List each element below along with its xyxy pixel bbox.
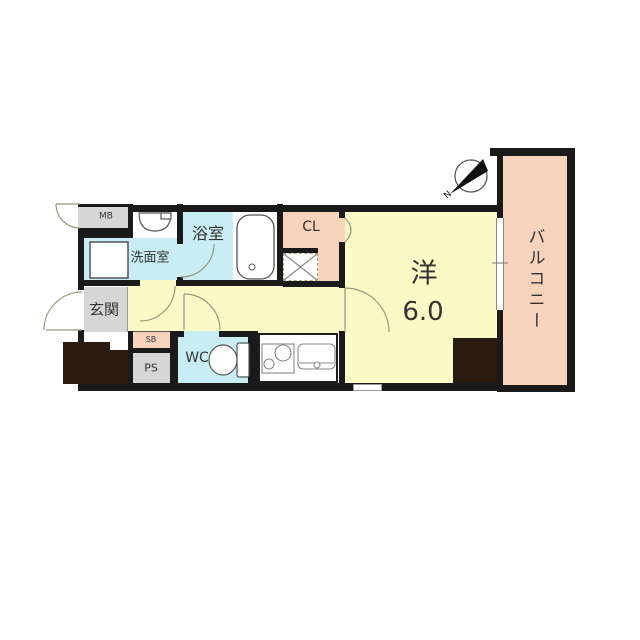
main-room-size: 6.0 [402,299,443,325]
wall-wash-bath-upper [177,204,183,244]
wall-room-left-c [339,331,345,383]
kitchen-counter [258,333,338,383]
closet-door-gap [339,218,345,242]
structure-block-room-corner [453,338,497,383]
wall-top-meterbox [78,204,130,207]
wall-below-wash-right [176,280,183,286]
wall-wc-left [170,331,178,383]
compass-n-label: N [442,189,454,201]
shoe-box-label: SB [146,336,157,344]
bathroom-floor [183,212,233,280]
balcony-label: バルコニー [526,228,543,333]
wall-room-left-b [339,242,345,288]
entrance-label: 玄関 [89,303,119,318]
meter-box-door-gap [78,207,84,228]
meter-box-label: MB [99,213,113,222]
kitchen-low-window [353,384,382,391]
wall-below-closet [283,281,339,287]
wall-below-bath [183,280,283,286]
structure-block-bottom-left-b [110,350,128,384]
toilet-label: WC [185,351,209,365]
wall-top-main [128,205,503,212]
main-room-door-gap [339,288,345,331]
wall-balcony-left-low [497,310,503,385]
wall-below-wash-left [84,280,140,286]
wall-bath-closet [277,204,283,286]
toilet-door-gap [184,331,219,337]
wall-balcony-bottom [497,385,575,392]
wall-balcony-left-up [497,156,503,218]
wall-sb-ps-band [133,348,170,353]
wall-sb-left [128,331,133,383]
wall-mb-bottom [84,228,133,238]
wall-closet-inner [283,248,318,253]
corridor-kitchen-floor [128,286,341,333]
wall-balcony-top [490,148,575,156]
wall-wc-top-left [170,331,184,337]
floor-plan: N MB 洗面室 浴室 CL 玄関 SB PS WC 洋 6.0 バルコニー [0,0,640,640]
wall-wc-counter [248,331,258,383]
closet-floor-lower [318,248,339,281]
structure-block-bottom-left-a [63,342,110,384]
wall-bottom-main [78,383,503,391]
closet-label: CL [302,220,320,234]
shaft-box [283,253,318,281]
meter-box-door-arc [56,204,80,228]
entrance-door-arc [44,292,82,330]
balcony-window [496,218,504,310]
bathtub-area-floor [233,212,277,280]
pipe-space-label: PS [144,363,158,374]
wall-balcony-right [567,148,575,392]
washroom-label: 洗面室 [130,252,169,265]
bathroom-door-gap [177,244,183,277]
washroom-door-gap [140,280,176,286]
main-room-label: 洋 [411,261,438,288]
wall-wc-top-right [219,331,248,337]
bathroom-label: 浴室 [192,226,224,242]
compass-north-icon: N [442,159,488,201]
